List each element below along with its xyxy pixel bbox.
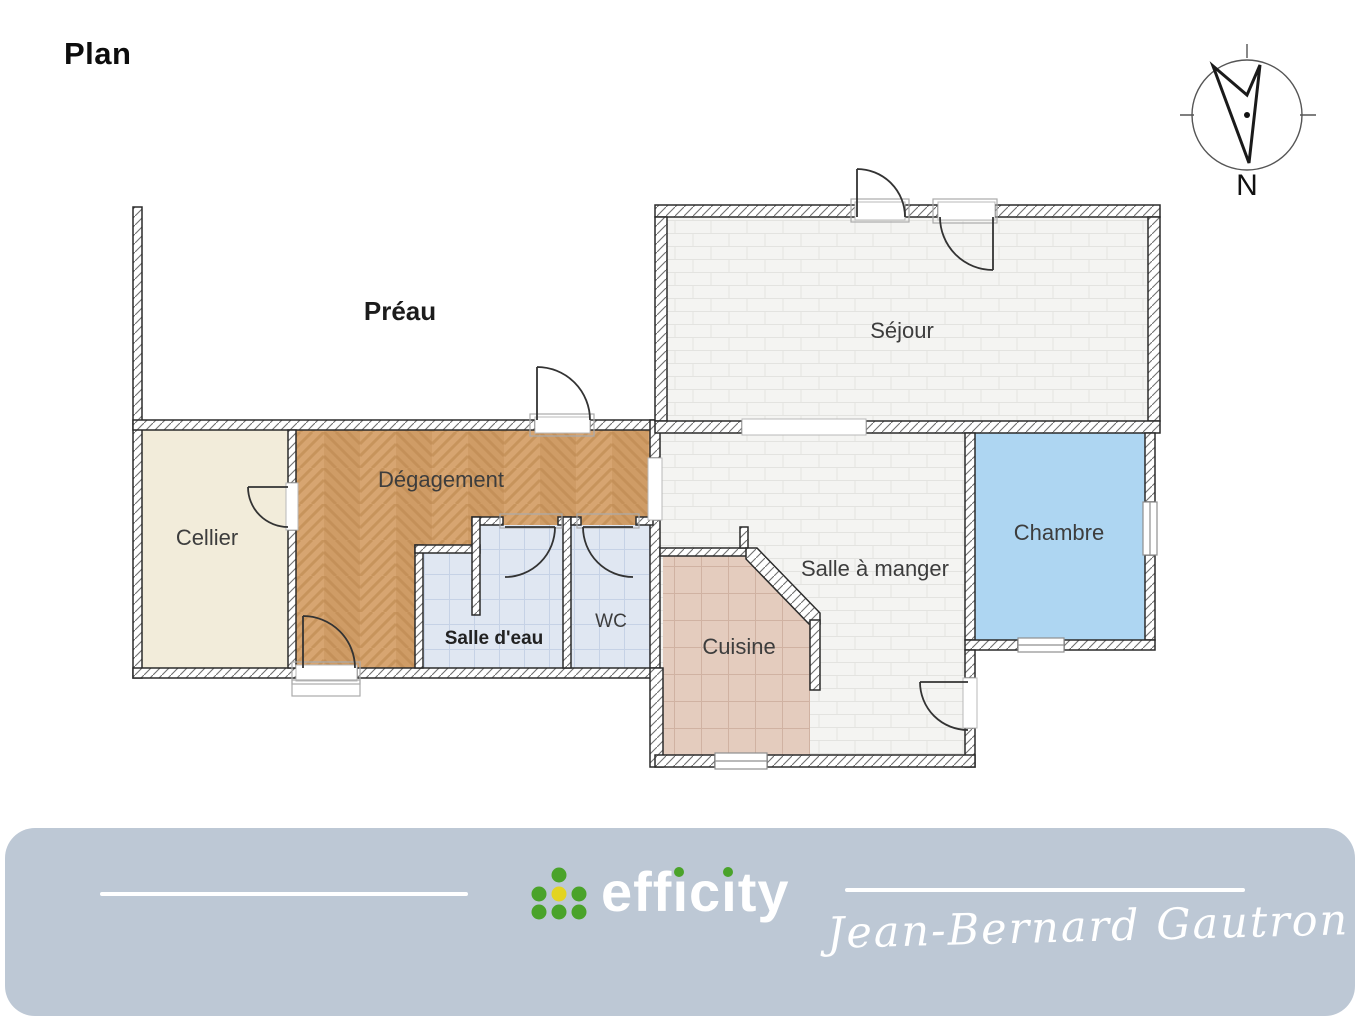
room-label-preau: Préau <box>364 296 436 326</box>
compass-icon: N <box>1180 40 1330 210</box>
brand-wordmark: effıcıty <box>601 860 790 924</box>
room-label-wc: WC <box>595 611 627 632</box>
room-label-salle-a-manger: Salle à manger <box>801 556 949 581</box>
compass-north-label: N <box>1236 169 1258 202</box>
room-label-salle-deau: Salle d'eau <box>445 628 544 649</box>
room-label-degagement: Dégagement <box>378 467 504 492</box>
divider-line-left <box>100 892 468 896</box>
logo-dots-icon <box>527 866 591 920</box>
compass-needle <box>1213 65 1260 163</box>
floor-plan: Préau Séjour Cellier Dégagement Salle d'… <box>0 0 1360 820</box>
divider-line-right <box>845 888 1245 892</box>
agent-signature: Jean-Bernard Gautron <box>826 895 1357 959</box>
room-label-chambre: Chambre <box>1014 520 1104 545</box>
footer-banner: effıcıty Jean-Bernard Gautron <box>5 828 1355 1016</box>
compass-rose <box>1180 44 1316 170</box>
room-floor-wc <box>571 525 650 668</box>
room-label-cellier: Cellier <box>176 525 238 550</box>
room-label-sejour: Séjour <box>870 318 934 343</box>
efficity-logo: effıcıty <box>527 860 790 924</box>
room-label-cuisine: Cuisine <box>702 634 775 659</box>
